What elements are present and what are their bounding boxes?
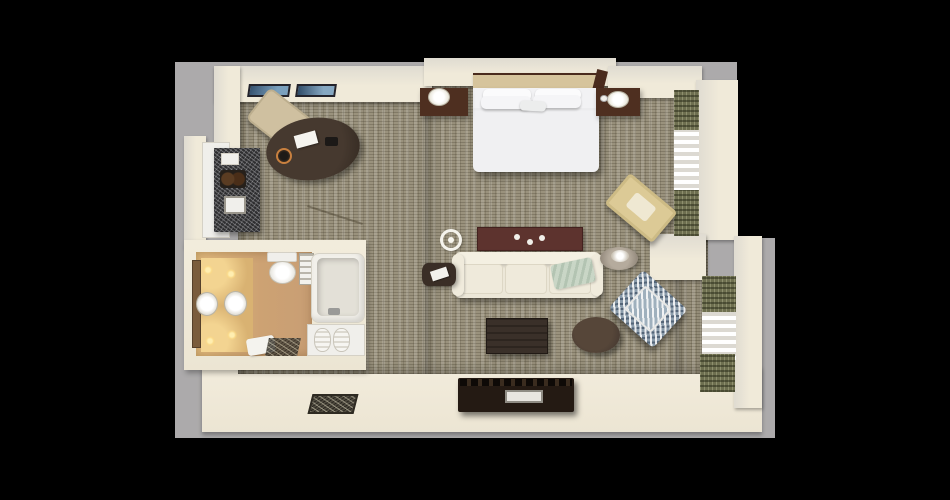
sink-left [196,292,218,316]
table-lamp-left [428,88,450,106]
table-lamp-right [607,91,629,108]
tv-console-top-decor [460,379,572,386]
tub-faucet [328,308,340,315]
vanity-light-4 [227,330,237,340]
lower-drape-top [702,276,736,314]
lower-sheer [702,312,736,360]
upper-sheer [674,130,699,192]
vanity-light-2 [226,269,236,279]
bar-glassware [220,170,246,188]
round-ottoman [572,317,620,353]
lower-drape-bottom [700,354,735,392]
accent-pillow [520,100,546,111]
ceiling-light-center [448,237,454,243]
doormat [308,394,359,414]
wall-right-lower [734,236,762,408]
desk-ice-bucket [276,148,292,164]
upper-drape-bottom [674,190,699,236]
desk-phone [325,137,338,146]
vanity-light-1 [203,265,213,275]
console-knob-2 [527,239,533,245]
sink-right [224,291,247,316]
upper-drape-top [674,90,699,132]
rolled-towel-1 [314,328,331,352]
toilet-bowl [269,261,296,284]
entry-tile [265,338,301,356]
nightstand-cup [600,95,608,102]
floorplan-image [0,0,950,500]
wall-window-pier [650,234,706,280]
sofa-cushion-1 [461,264,503,294]
bar-sink [224,196,246,214]
wall-left [214,66,240,150]
vanity-light-3 [205,336,215,346]
console-knob-1 [514,234,520,240]
wall-right-upper [696,80,738,240]
tv-console-drawer [505,390,543,403]
rolled-towel-2 [333,328,350,352]
wall-art-right [295,84,337,97]
console-knob-3 [539,235,545,241]
table-lamp-small [611,250,629,262]
bar-coffee-maker [221,153,239,165]
coffee-table [486,318,548,354]
sofa-cushion-2 [505,264,547,294]
